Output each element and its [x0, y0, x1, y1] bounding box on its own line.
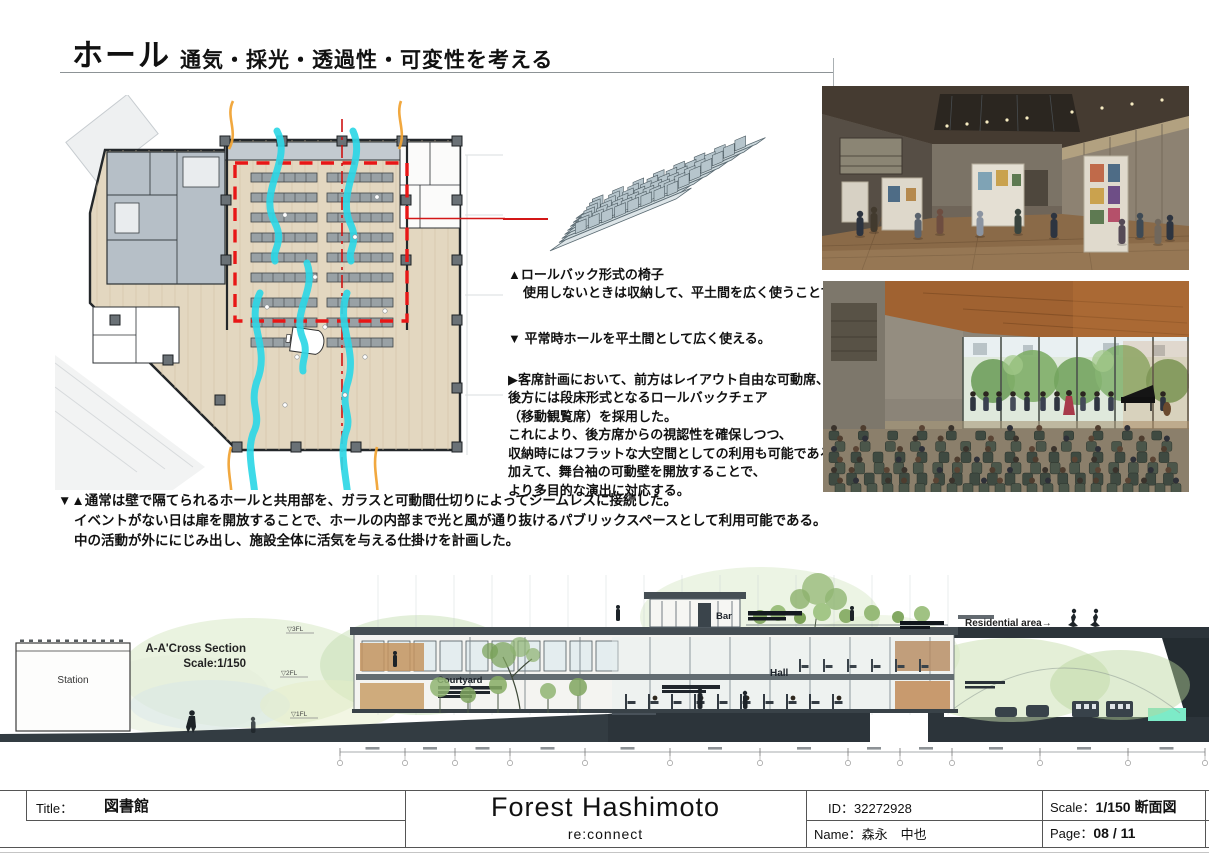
rollback-note-body: 使用しないときは収納して、平土間を広く使うことできる。: [508, 284, 872, 302]
scale-value: 1/150 断面図: [1096, 799, 1177, 815]
residential-label: Residential area→: [965, 618, 1052, 629]
title-underline-tick: [833, 58, 834, 86]
seating-line: ▶客席計画において、前方はレイアウト自由な可動席、: [508, 371, 845, 389]
floor-plan-drawing: [55, 95, 505, 490]
seating-line: 収納時にはフラットな大空間としての利用も可能である。: [508, 445, 845, 463]
titleblock-bottom-line: [0, 847, 1209, 848]
bar-label: Bar: [716, 611, 732, 622]
id-field: ID：32272928: [828, 798, 912, 817]
seamless-line: 中の活動が外ににじみ出し、施設全体に活気を与える仕掛けを計画した。: [58, 531, 827, 551]
name-field: Name：森永 中也: [814, 824, 927, 843]
section-title: A-A'Cross Section: [145, 643, 246, 655]
titleblock-top-line: [0, 790, 1209, 791]
cross-section-drawing: Station A-A'Cross Section Scale:1/150 ▽3…: [0, 555, 1209, 780]
runners: [1068, 609, 1100, 627]
seating-plan-paragraph: ▶客席計画において、前方はレイアウト自由な可動席、 後方には段床形式となるロール…: [508, 371, 845, 500]
project-subtitle: re:connect: [405, 826, 806, 842]
project-title-value: 図書館: [104, 795, 149, 816]
rollback-note-title: ▲ロールバック形式の椅子: [508, 266, 872, 284]
flat-use-note: ▼ 平常時ホールを平土間として広く使える。: [508, 330, 771, 348]
page-field: Page：08 / 11: [1050, 823, 1135, 843]
level-2fl: ▽2FL: [281, 670, 298, 677]
sheet-edge-line: [0, 852, 1209, 853]
titleblock-divider: [1205, 790, 1206, 847]
seating-line: 後方には段床形式となるロールバックチェア: [508, 389, 845, 407]
staff-rooms: [107, 152, 225, 284]
section-scale: Scale:1/150: [183, 658, 246, 670]
presentation-sheet: ホール 通気・採光・透過性・可変性を考える: [0, 0, 1209, 860]
tiered-seating: [550, 136, 765, 251]
titleblock-divider: [26, 790, 27, 820]
title-label: Title：: [36, 798, 73, 817]
leader-line: [503, 218, 548, 220]
seamless-line: ▼▲通常は壁で隔てられるホールと共用部を、ガラスと可動間仕切りによってシームレス…: [58, 491, 827, 511]
page-value: 08 / 11: [1093, 825, 1135, 841]
titleblock-divider: [1042, 790, 1043, 847]
concert-photo: [823, 281, 1189, 492]
service-rooms: [400, 142, 460, 228]
seating-line: これにより、後方席からの視認性を確保しつつ、: [508, 426, 845, 444]
seamless-paragraph: ▼▲通常は壁で隔てられるホールと共用部を、ガラスと可動間仕切りによってシームレス…: [58, 491, 827, 551]
page-label: Page：: [1050, 826, 1093, 841]
titleblock-divider: [806, 790, 807, 847]
dimension-line: [337, 747, 1207, 766]
rollback-chairs-axonometric: [545, 110, 795, 260]
title-underline: [60, 72, 833, 73]
seamless-line: イベントがない日は扉を開放することで、ホールの内部まで光と風が通り抜けるパブリッ…: [58, 511, 827, 531]
scale-field: Scale：1/150 断面図: [1050, 797, 1176, 817]
tiny-annotation: [958, 615, 994, 619]
station-label: Station: [57, 675, 88, 686]
station: Station: [16, 640, 130, 732]
rollback-note: ▲ロールバック形式の椅子 使用しないときは収納して、平土間を広く使うことできる。: [508, 266, 872, 303]
seating-line: （移動観覧席）を採用した。: [508, 408, 845, 426]
page-title: ホール: [72, 30, 171, 75]
project-name: Forest Hashimoto: [405, 792, 806, 823]
seating-line: 加えて、舞台袖の可動壁を開放することで、: [508, 463, 845, 481]
hall-label: Hall: [770, 668, 789, 679]
gallery-photo: [822, 86, 1189, 270]
level-1fl: ▽1FL: [291, 711, 308, 718]
scale-label: Scale：: [1050, 800, 1096, 815]
titleblock-mid-line-left: [26, 820, 405, 821]
page-subtitle: 通気・採光・透過性・可変性を考える: [180, 44, 553, 74]
level-3fl: ▽3FL: [287, 626, 304, 633]
titleblock-mid-line-right: [806, 820, 1209, 821]
